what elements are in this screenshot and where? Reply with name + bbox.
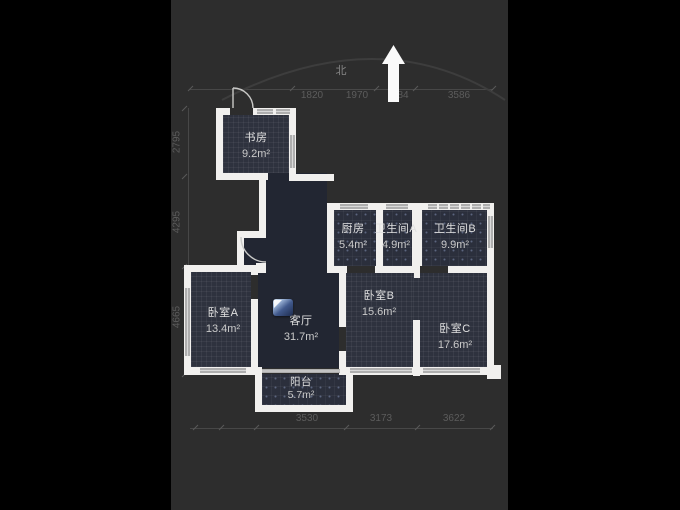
room-area: 9.2m²	[201, 147, 311, 163]
floorplan-viewer: 书房 9.2m² 厨房 5.4m² 卫生间A 4.9m² 卫生间B 9.9m² …	[0, 0, 680, 510]
bathroom-b-label: 卫生间B 9.9m²	[400, 222, 510, 253]
wall-segment	[259, 174, 266, 238]
wall-segment	[251, 265, 258, 275]
window	[276, 109, 290, 114]
dimension-label: 84	[397, 90, 408, 101]
vr-view-icon[interactable]	[273, 299, 293, 316]
entry-nook-floor	[244, 238, 266, 266]
dimension-label: 2795	[172, 131, 183, 153]
dimension-label: 3530	[296, 413, 318, 424]
wall-segment	[255, 405, 353, 412]
room-area: 5.7m²	[246, 389, 356, 402]
wall-segment	[237, 231, 244, 266]
dimension-label: 3173	[370, 413, 392, 424]
room-area: 9.9m²	[400, 238, 510, 254]
room-name: 书房	[201, 131, 311, 147]
wall-segment	[487, 365, 501, 379]
wall-segment	[184, 265, 258, 272]
north-label: 北	[336, 62, 347, 78]
dimension-label: 1820	[301, 90, 323, 101]
wall-segment	[448, 266, 494, 273]
dimension-label: 3622	[443, 413, 465, 424]
window	[423, 368, 480, 373]
bedroom-b-label: 卧室B 15.6m²	[324, 289, 434, 320]
room-name: 卧室C	[400, 322, 510, 338]
room-name: 卧室B	[324, 289, 434, 305]
dimension-label: 1970	[346, 90, 368, 101]
wall-segment	[289, 174, 334, 181]
window	[200, 368, 246, 373]
room-area: 15.6m²	[324, 305, 434, 321]
study-room-label: 书房 9.2m²	[201, 131, 311, 162]
room-area: 31.7m²	[246, 330, 356, 346]
window	[386, 204, 408, 209]
balcony-label: 阳台 5.7m²	[246, 376, 356, 401]
room-name: 卫生间B	[400, 222, 510, 238]
dimension-label: 3586	[448, 90, 470, 101]
window	[257, 109, 273, 114]
dimension-label: 4295	[172, 211, 183, 233]
window	[350, 368, 412, 373]
room-area: 17.6m²	[400, 338, 510, 354]
wall-segment	[414, 266, 420, 278]
dimension-line-bottom	[190, 428, 493, 429]
window	[428, 204, 490, 209]
window	[340, 204, 368, 209]
room-name: 阳台	[246, 376, 356, 389]
window	[262, 369, 340, 373]
bedroom-c-label: 卧室C 17.6m²	[400, 322, 510, 353]
